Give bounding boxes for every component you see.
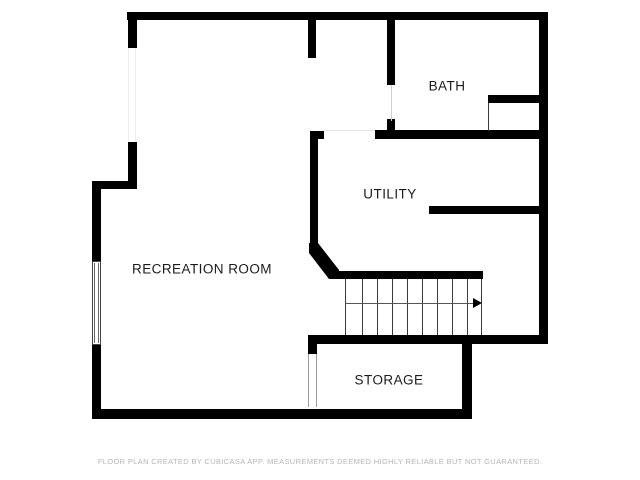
stair-tread-line bbox=[377, 279, 378, 335]
wall-top bbox=[127, 12, 548, 20]
wall-bath-bottom bbox=[375, 130, 548, 139]
stair-tread-line bbox=[362, 279, 363, 335]
wall-top-stub bbox=[308, 20, 316, 58]
wall-upper-left-b bbox=[128, 142, 137, 182]
wall-stairs-top bbox=[330, 271, 483, 279]
disclaimer-text: FLOOR PLAN CREATED BY CUBICASA APP. MEAS… bbox=[0, 457, 640, 466]
wall-left-a bbox=[92, 189, 101, 262]
wall-right bbox=[539, 12, 548, 344]
stair-tread-line bbox=[467, 279, 468, 335]
room-label-bath: BATH bbox=[429, 79, 466, 94]
wall-storage-left-stub bbox=[308, 344, 317, 354]
stair-tread-line bbox=[452, 279, 453, 335]
floor-plan-canvas: RECREATION ROOM BATH UTILITY STORAGE FLO… bbox=[0, 0, 640, 480]
opening-bath-door bbox=[391, 85, 392, 121]
wall-upper-left-a bbox=[128, 20, 137, 48]
stairs-arrow-icon bbox=[473, 298, 482, 308]
wall-left-jog bbox=[92, 181, 137, 189]
bath-closet-front-line bbox=[488, 103, 489, 131]
stair-tread-line bbox=[392, 279, 393, 335]
window-icon bbox=[92, 261, 101, 345]
stair-tread-line bbox=[422, 279, 423, 335]
stairs-direction-line bbox=[345, 303, 474, 304]
room-label-storage: STORAGE bbox=[355, 373, 424, 388]
wall-bath-closet-top bbox=[488, 95, 539, 103]
wall-utility-left bbox=[310, 131, 318, 247]
opening-upper-left-edge bbox=[135, 48, 136, 142]
opening-utility-entry bbox=[324, 130, 375, 131]
opening-upper-left-edge bbox=[128, 48, 129, 142]
wall-bottom bbox=[92, 409, 472, 419]
opening-storage-door-edge bbox=[316, 354, 317, 407]
stair-tread-line bbox=[437, 279, 438, 335]
wall-storage-right bbox=[462, 344, 472, 409]
wall-stairs-bottom bbox=[308, 335, 548, 344]
room-label-utility: UTILITY bbox=[363, 187, 416, 202]
opening-storage-door-edge bbox=[308, 354, 309, 407]
wall-bath-left-upper bbox=[387, 20, 395, 85]
room-label-recreation: RECREATION ROOM bbox=[132, 262, 272, 277]
stair-tread-line bbox=[407, 279, 408, 335]
window-pane bbox=[94, 263, 99, 343]
wall-left-b bbox=[92, 343, 101, 413]
staircase bbox=[345, 279, 482, 335]
wall-utility-bottom bbox=[429, 206, 548, 214]
